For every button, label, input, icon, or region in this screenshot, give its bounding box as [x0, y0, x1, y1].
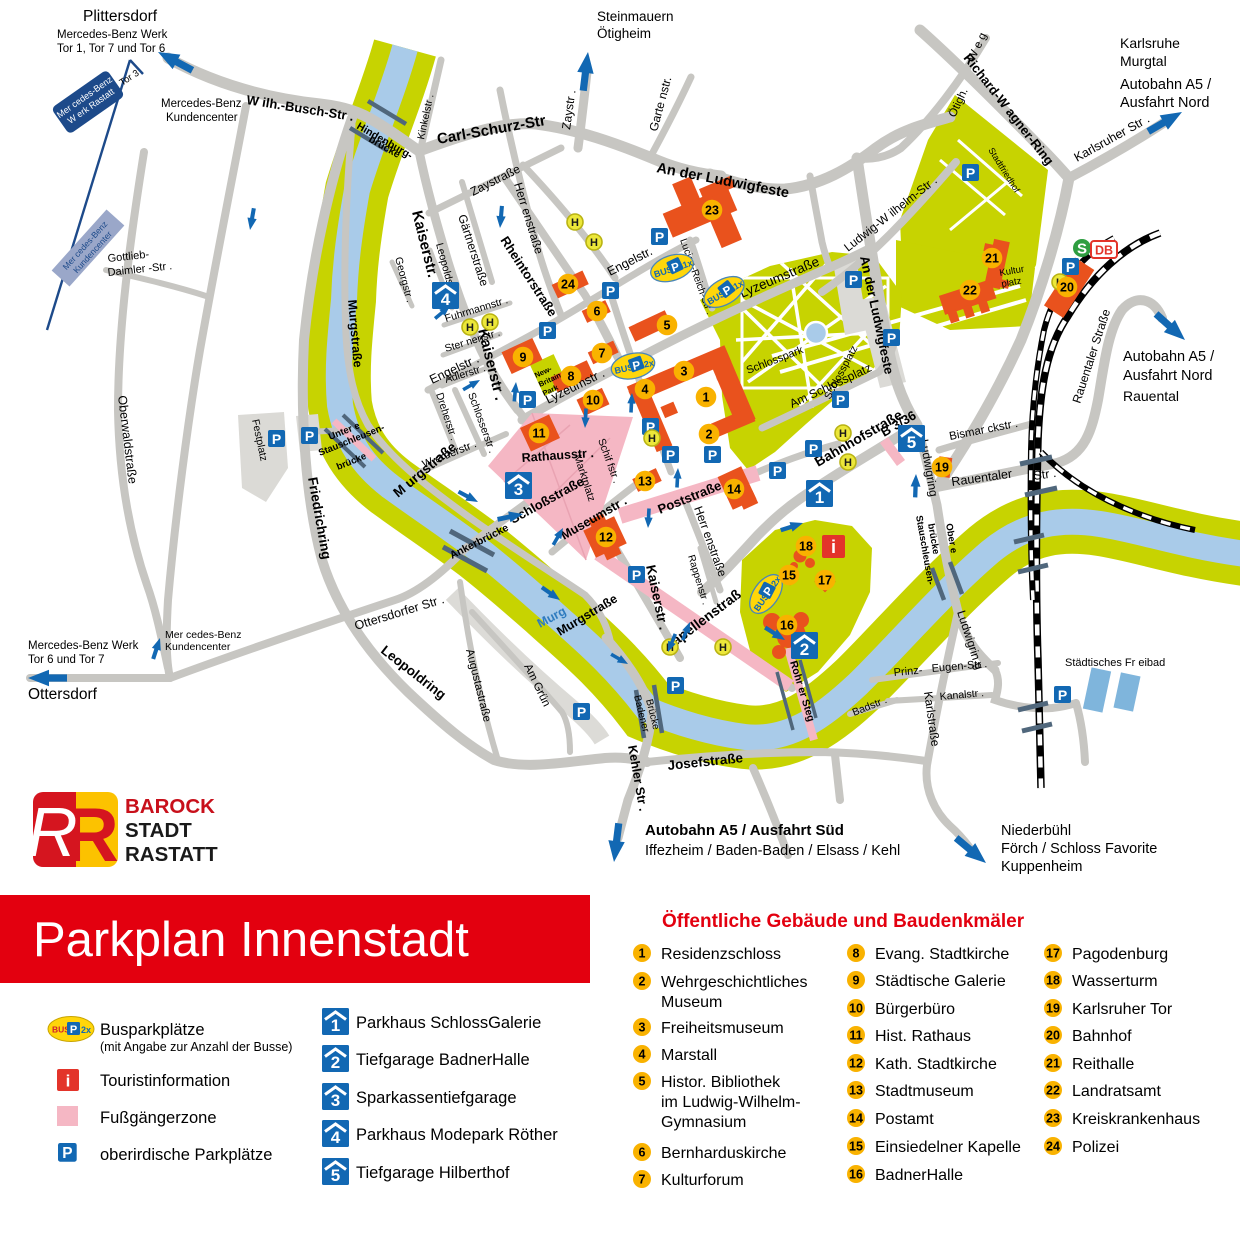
svg-text:Tor 6 und Tor 7: Tor 6 und Tor 7 — [28, 654, 105, 666]
svg-text:Kundencenter: Kundencenter — [165, 641, 231, 653]
svg-text:Autobahn A5 /: Autobahn A5 / — [1123, 349, 1215, 365]
svg-text:Museum: Museum — [661, 994, 722, 1011]
svg-text:15: 15 — [782, 568, 796, 582]
svg-text:4: 4 — [441, 290, 451, 309]
svg-text:Evang. Stadtkirche: Evang. Stadtkirche — [875, 946, 1009, 963]
svg-text:Einsiedelner Kapelle: Einsiedelner Kapelle — [875, 1139, 1021, 1156]
svg-text:2: 2 — [331, 1053, 340, 1072]
svg-text:Städtisches Fr eibad: Städtisches Fr eibad — [1065, 657, 1165, 669]
svg-text:Sparkassentiefgarage: Sparkassentiefgarage — [356, 1089, 517, 1107]
svg-text:Kulturforum: Kulturforum — [661, 1172, 744, 1189]
svg-text:Rauental: Rauental — [1123, 388, 1179, 404]
svg-text:(mit Angabe zur Anzahl der Bus: (mit Angabe zur Anzahl der Busse) — [100, 1040, 292, 1054]
svg-text:STADT: STADT — [125, 819, 192, 842]
svg-text:Kuppenheim: Kuppenheim — [1001, 859, 1082, 875]
svg-text:BAROCK: BAROCK — [125, 795, 215, 818]
svg-text:Öffentliche Gebäude und Bauden: Öffentliche Gebäude und Baudenkmäler — [662, 911, 1025, 932]
svg-text:3: 3 — [681, 364, 688, 378]
svg-text:16: 16 — [849, 1167, 863, 1181]
svg-text:S: S — [1077, 241, 1087, 258]
svg-text:7: 7 — [639, 1172, 646, 1186]
svg-text:i: i — [831, 537, 836, 557]
svg-text:Ausfahrt Nord: Ausfahrt Nord — [1123, 368, 1212, 384]
svg-text:Reithalle: Reithalle — [1072, 1056, 1134, 1073]
svg-text:im Ludwig-Wilhelm-: im Ludwig-Wilhelm- — [661, 1094, 801, 1111]
svg-text:18: 18 — [799, 539, 813, 553]
svg-text:16: 16 — [780, 618, 794, 632]
svg-text:5: 5 — [907, 433, 916, 452]
svg-text:9: 9 — [520, 350, 527, 364]
svg-text:2: 2 — [639, 974, 646, 988]
svg-text:Städtische Galerie: Städtische Galerie — [875, 973, 1006, 990]
svg-text:Wasserturm: Wasserturm — [1072, 973, 1158, 990]
svg-text:10: 10 — [849, 1001, 863, 1015]
svg-text:Karlsruhe: Karlsruhe — [1120, 35, 1180, 51]
svg-text:Bernharduskirche: Bernharduskirche — [661, 1145, 787, 1162]
svg-text:4: 4 — [639, 1047, 646, 1061]
svg-text:Ötigheim: Ötigheim — [597, 26, 651, 41]
svg-text:Busparkplätze: Busparkplätze — [100, 1021, 205, 1039]
svg-text:17: 17 — [818, 573, 832, 587]
svg-text:Hist. Rathaus: Hist. Rathaus — [875, 1028, 971, 1045]
svg-text:oberirdische Parkplätze: oberirdische Parkplätze — [100, 1146, 272, 1164]
svg-text:Kundencenter: Kundencenter — [166, 112, 238, 124]
svg-text:Bürgerbüro: Bürgerbüro — [875, 1001, 955, 1018]
svg-text:Tor 1, Tor 7 und Tor 6: Tor 1, Tor 7 und Tor 6 — [57, 43, 165, 55]
svg-text:Gymnasium: Gymnasium — [661, 1114, 746, 1131]
svg-text:2x: 2x — [643, 358, 655, 370]
svg-text:Ausfahrt Nord: Ausfahrt Nord — [1120, 95, 1209, 111]
svg-text:Mercedes-Benz Werk: Mercedes-Benz Werk — [28, 640, 139, 652]
svg-text:Prinz-: Prinz- — [893, 665, 923, 679]
svg-text:Residenzschloss: Residenzschloss — [661, 946, 781, 963]
svg-text:11: 11 — [849, 1028, 862, 1042]
svg-text:4: 4 — [331, 1128, 341, 1147]
svg-text:19: 19 — [1046, 1001, 1060, 1015]
svg-text:3: 3 — [331, 1091, 340, 1110]
svg-text:Tiefgarage BadnerHalle: Tiefgarage BadnerHalle — [356, 1051, 530, 1069]
svg-text:Kreiskrankenhaus: Kreiskrankenhaus — [1072, 1111, 1200, 1128]
svg-text:13: 13 — [849, 1083, 863, 1097]
svg-text:20: 20 — [1046, 1028, 1060, 1042]
svg-text:17: 17 — [1046, 946, 1060, 960]
svg-text:2: 2 — [800, 640, 809, 659]
svg-text:21: 21 — [1046, 1056, 1060, 1070]
svg-text:6: 6 — [594, 304, 601, 318]
svg-text:20: 20 — [1060, 280, 1074, 294]
svg-text:5: 5 — [664, 318, 671, 332]
svg-text:18: 18 — [1046, 973, 1060, 987]
svg-text:14: 14 — [727, 482, 741, 496]
svg-text:5: 5 — [639, 1074, 646, 1088]
svg-text:Polizei: Polizei — [1072, 1139, 1119, 1156]
svg-text:Autobahn A5 /: Autobahn A5 / — [1120, 77, 1212, 93]
svg-text:21: 21 — [985, 251, 999, 265]
svg-text:2: 2 — [706, 427, 713, 441]
svg-text:Parkhaus SchlossGalerie: Parkhaus SchlossGalerie — [356, 1014, 541, 1032]
svg-text:7: 7 — [599, 346, 606, 360]
svg-text:12: 12 — [599, 530, 613, 544]
svg-text:Parkhaus Modepark Röther: Parkhaus Modepark Röther — [356, 1126, 558, 1144]
svg-text:RASTATT: RASTATT — [125, 843, 218, 866]
svg-text:14: 14 — [849, 1111, 863, 1125]
svg-text:24: 24 — [1046, 1139, 1060, 1153]
svg-text:Stadtmuseum: Stadtmuseum — [875, 1083, 974, 1100]
svg-text:i: i — [66, 1072, 71, 1091]
svg-text:4: 4 — [642, 382, 649, 396]
svg-text:Freiheitsmuseum: Freiheitsmuseum — [661, 1020, 784, 1037]
svg-text:23: 23 — [705, 203, 719, 217]
svg-text:9: 9 — [853, 973, 860, 987]
svg-text:8: 8 — [853, 946, 860, 960]
svg-text:Förch / Schloss Favorite: Förch / Schloss Favorite — [1001, 841, 1157, 857]
svg-text:Bahnhof: Bahnhof — [1072, 1028, 1132, 1045]
svg-text:Wehrgeschichtliches: Wehrgeschichtliches — [661, 974, 807, 991]
svg-text:Mercedes-Benz: Mercedes-Benz — [161, 98, 242, 110]
svg-text:Kath. Stadtkirche: Kath. Stadtkirche — [875, 1056, 997, 1073]
svg-text:Tiefgarage Hilberthof: Tiefgarage Hilberthof — [356, 1164, 510, 1182]
svg-text:24: 24 — [561, 277, 575, 291]
svg-text:Landratsamt: Landratsamt — [1072, 1083, 1161, 1100]
svg-text:Autobahn A5 / Ausfahrt Süd: Autobahn A5 / Ausfahrt Süd — [645, 822, 844, 839]
svg-text:Mer cedes-Benz: Mer cedes-Benz — [165, 629, 241, 641]
svg-text:DB: DB — [1095, 244, 1113, 258]
svg-text:Plittersdorf: Plittersdorf — [83, 8, 158, 25]
svg-text:Histor. Bibliothek: Histor. Bibliothek — [661, 1074, 781, 1091]
svg-text:Fußgängerzone: Fußgängerzone — [100, 1109, 217, 1127]
svg-text:5: 5 — [331, 1166, 340, 1185]
svg-text:Postamt: Postamt — [875, 1111, 934, 1128]
svg-text:Iffezheim / Baden-Baden / Elsa: Iffezheim / Baden-Baden / Elsass / Kehl — [645, 843, 900, 859]
svg-text:R: R — [27, 793, 78, 871]
svg-text:2x: 2x — [81, 1025, 91, 1035]
svg-text:1: 1 — [331, 1016, 340, 1035]
svg-text:10: 10 — [586, 393, 600, 407]
svg-text:23: 23 — [1046, 1111, 1060, 1125]
svg-text:15: 15 — [849, 1139, 863, 1153]
svg-text:22: 22 — [1046, 1083, 1060, 1097]
svg-text:13: 13 — [638, 474, 652, 488]
svg-text:1: 1 — [703, 390, 710, 404]
svg-text:Steinmauern: Steinmauern — [597, 9, 674, 24]
svg-text:22: 22 — [963, 283, 977, 297]
svg-text:6: 6 — [639, 1145, 646, 1159]
svg-text:8: 8 — [568, 369, 575, 383]
svg-text:Pagodenburg: Pagodenburg — [1072, 946, 1168, 963]
svg-text:Mercedes-Benz Werk: Mercedes-Benz Werk — [57, 29, 168, 41]
svg-text:1: 1 — [815, 488, 824, 507]
svg-text:12: 12 — [849, 1056, 863, 1070]
svg-text:19: 19 — [935, 460, 949, 474]
svg-text:Murgtal: Murgtal — [1120, 53, 1167, 69]
svg-text:Parkplan Innenstadt: Parkplan Innenstadt — [33, 913, 469, 967]
svg-text:BadnerHalle: BadnerHalle — [875, 1167, 963, 1184]
svg-text:Marstall: Marstall — [661, 1047, 717, 1064]
svg-text:11: 11 — [532, 426, 545, 440]
svg-text:1: 1 — [639, 946, 646, 960]
svg-text:Karlsruher Tor: Karlsruher Tor — [1072, 1001, 1173, 1018]
svg-text:3: 3 — [514, 480, 523, 499]
svg-text:Touristinformation: Touristinformation — [100, 1072, 230, 1090]
svg-text:Niederbühl: Niederbühl — [1001, 823, 1071, 839]
svg-text:3: 3 — [639, 1020, 646, 1034]
svg-text:Ottersdorf: Ottersdorf — [28, 686, 98, 703]
